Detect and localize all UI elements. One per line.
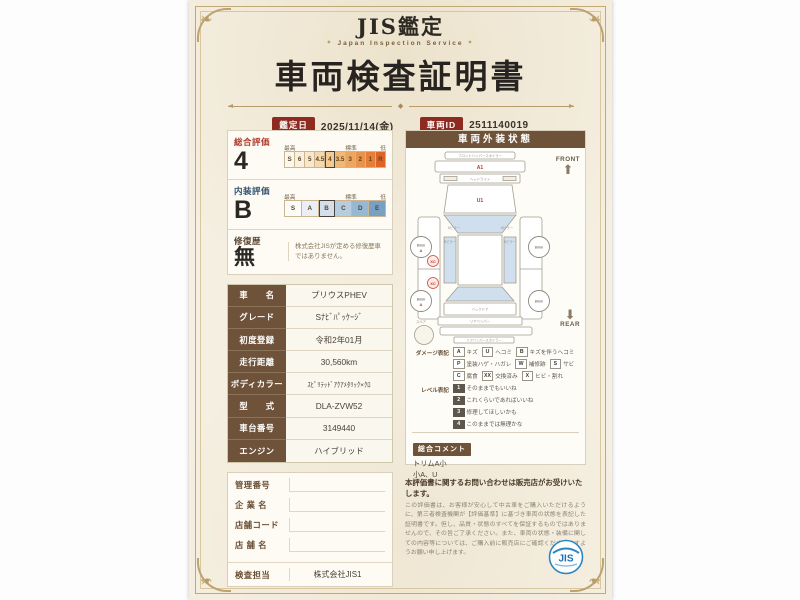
certificate: JIS鑑定 Japan Inspection Service 車両検査証明書 ◆… (189, 0, 612, 600)
damage-legend-title: ダメージ表記 (411, 347, 453, 381)
repair-history-note: 株式会社JISが定める修復歴車ではありません。 (288, 242, 386, 261)
row-value (289, 498, 385, 512)
arrow-down-icon: ⬇ (560, 308, 580, 321)
scale-cell: 1 (366, 151, 376, 168)
row-value: プリウスPHEV (286, 285, 392, 307)
diagram-label-front-spoiler: フロントバンパースポイラー (458, 153, 503, 158)
row-value: 令和2年01月 (286, 329, 392, 351)
vehicle-id-value: 2511140019 (469, 120, 529, 131)
office-info-panel: 管理番号 企 業 名 店舗コード 店 舗 名 検査担当 株式会社JI (227, 472, 393, 587)
disclaimer-section: 本評価書に関するお問い合わせは販売店がお受けいたします。 この評価書は、お客様が… (405, 477, 586, 559)
interior-grade-scale: 最高 標準 低 S A B C D E (284, 192, 386, 217)
page: JIS鑑定 Japan Inspection Service 車両検査証明書 ◆… (0, 0, 800, 600)
evaluation-panel: 総合評価 4 最高 標準 低 S 6 5 4.5 (227, 130, 393, 275)
table-row: 走行距離 30,560km (228, 351, 392, 373)
diagram-label-a-pillar: Aピラー (501, 225, 514, 230)
divider (412, 432, 579, 433)
scale-cell: S (284, 200, 302, 217)
rear-indicator: ⬇ REAR (560, 308, 580, 328)
diagram-label-headlight: ヘッドライト (470, 177, 490, 182)
tire-mark-lf: A (420, 248, 423, 253)
diagram-label-b-pillar: Bピラー (504, 239, 516, 244)
scale-cell: E (369, 200, 386, 217)
overall-evaluation-row: 総合評価 4 最高 標準 低 S 6 5 4.5 (228, 131, 392, 180)
scale-caption-best: 最高 (284, 143, 296, 152)
overall-comment: 総合コメント トリムA小 小A、U (406, 436, 585, 483)
table-row: 型 式 DLA-ZVW52 (228, 395, 392, 417)
scale-cell: R (376, 151, 386, 168)
scale-cell: D (352, 200, 369, 217)
vehicle-info-table: 車 名 プリウスPHEV グレード Sﾅﾋﾞﾊﾟｯｹｰｼﾞ 初度登録 令和2年0… (227, 284, 393, 464)
damage-legend: ダメージ表記 Aキズ Uヘコミ Bキズを伴うヘコミ P塗装ハゲ・ハガレ W補修跡… (406, 345, 585, 429)
legend-item: 3修理してほしいかも (453, 408, 517, 418)
scale-caption-standard: 標準 (345, 192, 357, 201)
level-legend: レベル表記 1そのままでもいいね 2これくらいであればいいね 3修理してほしいか… (411, 384, 580, 430)
row-value: Sﾅﾋﾞﾊﾟｯｹｰｼﾞ (286, 307, 392, 329)
row-label: 車 名 (228, 285, 286, 307)
disclaimer-headline: 本評価書に関するお問い合わせは販売店がお受けいたします。 (405, 477, 586, 499)
scale-cell: S (284, 151, 295, 168)
tire-tread-lr: 8mm (417, 298, 425, 302)
scale-cell: 3.5 (335, 151, 345, 168)
row-value (289, 478, 385, 492)
legend-item: 4このままでは無理かな (453, 420, 522, 430)
diagram-label-a-pillar: Aピラー (448, 225, 461, 230)
scale-cell: 4.5 (315, 151, 325, 168)
damage-mark-hood: U1 (477, 198, 484, 204)
repair-history-value: 無 (234, 247, 284, 269)
tire-tread-rr: 8mm (535, 300, 543, 304)
certificate-title: 車両検査証明書 (189, 50, 612, 98)
tire-tread-lf: 8mm (417, 244, 425, 248)
certificate-header: JIS鑑定 Japan Inspection Service 車両検査証明書 ◆… (189, 16, 612, 133)
row-label: ボディカラー (228, 373, 286, 395)
table-row: 初度登録 令和2年01月 (228, 329, 392, 351)
row-value: 3149440 (286, 418, 392, 440)
jis-logo: JIS (548, 539, 584, 575)
left-column: 総合評価 4 最高 標準 低 S 6 5 4.5 (227, 130, 393, 587)
exterior-condition-panel: 車両外装状態 FRONT ⬆ ⬇ REAR (405, 130, 586, 465)
row-label: 企 業 名 (235, 499, 289, 511)
table-row: エンジン ハイブリッド (228, 440, 392, 462)
repair-history-label: 修復歴 (234, 235, 284, 247)
brand-subtitle: Japan Inspection Service (189, 39, 612, 47)
legend-item: P塗装ハゲ・ハガレ (453, 359, 511, 369)
diagram-label-rear-bumper: リアバンパー (470, 319, 491, 324)
row-label: 初度登録 (228, 329, 286, 351)
legend-item: Xヒビ・割れ (522, 371, 563, 381)
scale-cell-selected: 4 (325, 151, 335, 168)
damage-mark-left-door-2: XC (430, 281, 436, 286)
tire-tread-rf: 8mm (535, 246, 543, 250)
jis-logo-text: JIS (558, 554, 573, 565)
table-row: ボディカラー ｽﾋﾟﾘﾃｯﾄﾞｱｸｱﾒﾀﾘｯｸ×ｸﾛ (228, 373, 392, 395)
legend-item: 2これくらいであればいいね (453, 396, 533, 406)
row-label: 車台番号 (228, 418, 286, 440)
spare-tire-label: スペア (416, 319, 427, 324)
damage-mark-left-door-1: XC (430, 259, 436, 264)
row-label: 管理番号 (235, 479, 289, 491)
front-indicator: FRONT ⬆ (556, 156, 580, 176)
legend-item: XX交換済み (482, 371, 518, 381)
legend-item: C腐食 (453, 371, 478, 381)
scale-cell: 3 (346, 151, 356, 168)
scale-caption-standard: 標準 (345, 143, 357, 152)
brand-title: JIS鑑定 (189, 16, 612, 38)
interior-grade: B (234, 197, 284, 223)
exterior-panel-title: 車両外装状態 (406, 131, 585, 148)
legend-item: Bキズを伴うヘコミ (516, 347, 574, 357)
legend-item: Sサビ (550, 359, 575, 369)
table-row: グレード Sﾅﾋﾞﾊﾟｯｹｰｼﾞ (228, 307, 392, 329)
rear-label: REAR (560, 321, 580, 328)
row-value: 30,560km (286, 351, 392, 373)
scale-cell-selected: B (319, 200, 336, 217)
row-value: ｽﾋﾟﾘﾃｯﾄﾞｱｸｱﾒﾀﾘｯｸ×ｸﾛ (286, 373, 392, 395)
row-value (289, 538, 385, 552)
legend-item: Uヘコミ (482, 347, 512, 357)
table-row: 企 業 名 (228, 495, 392, 515)
table-row: 店 舗 名 (228, 535, 392, 555)
car-damage-diagram: FRONT ⬆ ⬇ REAR (406, 148, 585, 345)
overall-comment-badge: 総合コメント (413, 443, 471, 456)
scale-caption-best: 最高 (284, 192, 296, 201)
overall-grade: 4 (234, 148, 284, 174)
diagram-label-back-door: バックドア (472, 307, 490, 312)
legend-item: 1そのままでもいいね (453, 384, 517, 394)
row-value (289, 518, 385, 532)
row-value: 株式会社JIS1 (289, 568, 385, 581)
ornamental-divider: ◆ (228, 102, 574, 110)
table-row: 店舗コード (228, 515, 392, 535)
damage-mark-front-bumper: A1 (477, 165, 484, 171)
arrow-up-icon: ⬆ (556, 163, 580, 176)
table-row: 管理番号 (228, 475, 392, 495)
table-row: 車台番号 3149440 (228, 418, 392, 440)
car-outline-svg: フロントバンパースポイラー A1 ヘッドライト U1 Aピラー Aピラー Bピラ… (408, 149, 558, 346)
level-legend-title: レベル表記 (411, 384, 453, 430)
row-label: 型 式 (228, 395, 286, 417)
diagram-label-b-pillar: Bピラー (444, 239, 456, 244)
row-label: 検査担当 (235, 569, 289, 581)
right-column: 車両外装状態 FRONT ⬆ ⬇ REAR (405, 130, 586, 465)
comment-line: トリムA小 (413, 459, 578, 470)
scale-cell: 6 (295, 151, 305, 168)
interior-evaluation-row: 内装評価 B 最高 標準 低 S A B C (228, 180, 392, 229)
diagram-label-rear-spoiler: リアバンパースポイラー (467, 338, 502, 343)
scale-cell: 5 (305, 151, 315, 168)
legend-item: Aキズ (453, 347, 478, 357)
scale-cell: 2 (356, 151, 366, 168)
row-value: DLA-ZVW52 (286, 395, 392, 417)
row-label: 走行距離 (228, 351, 286, 373)
table-row: 車 名 プリウスPHEV (228, 285, 392, 307)
scale-caption-low: 低 (380, 192, 386, 201)
scale-cell: C (335, 200, 352, 217)
scale-cell: A (302, 200, 319, 217)
row-label: 店 舗 名 (235, 539, 289, 551)
corner-flourish (197, 558, 231, 592)
repair-history-row: 修復歴 無 株式会社JISが定める修復歴車ではありません。 (228, 230, 392, 274)
overall-grade-scale: 最高 標準 低 S 6 5 4.5 4 3.5 3 2 (284, 143, 386, 168)
row-value: ハイブリッド (286, 440, 392, 462)
scale-caption-low: 低 (380, 143, 386, 152)
row-label: 店舗コード (235, 519, 289, 531)
row-label: グレード (228, 307, 286, 329)
legend-item: W補修跡 (515, 359, 545, 369)
table-row: 検査担当 株式会社JIS1 (228, 562, 392, 584)
tire-mark-lr: A (420, 302, 423, 307)
row-label: エンジン (228, 440, 286, 462)
